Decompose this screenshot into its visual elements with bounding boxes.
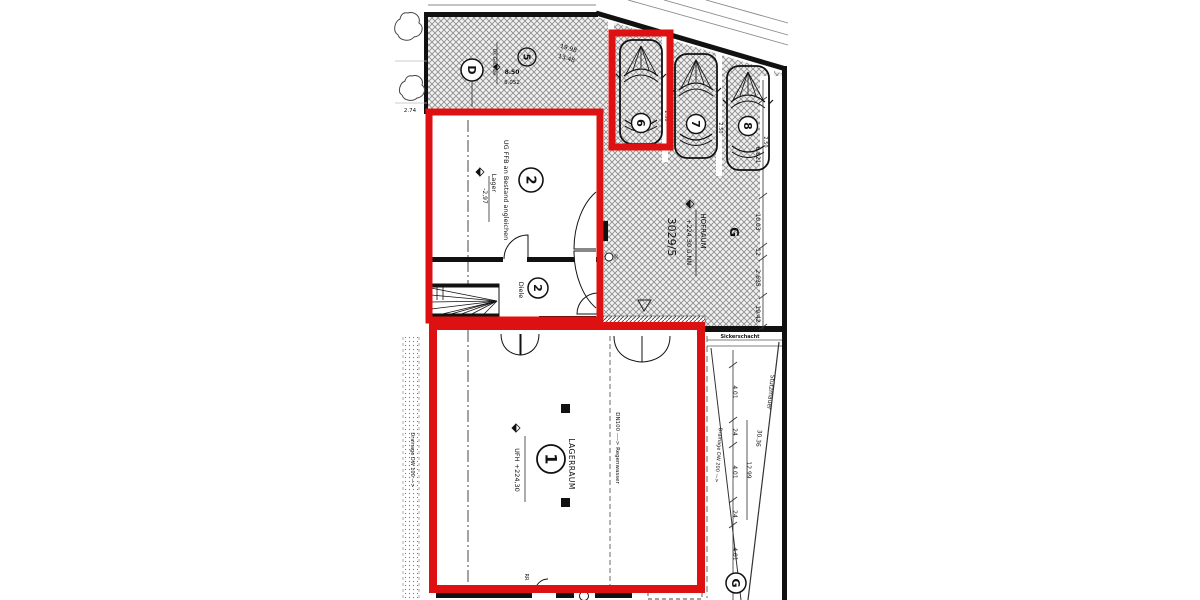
diele-name: Diele (517, 282, 525, 299)
hofraum-elevation: +224,30 ü.NN (685, 219, 693, 265)
drive-dim-1: 4.01 (731, 385, 738, 399)
car-8-number: 8 (741, 122, 754, 130)
dim-1003: 10.03 (754, 213, 761, 230)
drainage-left-label: Drainage DW 100 —> (409, 432, 415, 487)
drive-dim-5: 4.01 (731, 547, 738, 561)
hofraum-label: HOFRAUM (699, 213, 707, 248)
drive-dim-diagonal: 30.36 (754, 429, 763, 447)
room-1-number: 1 (542, 453, 561, 464)
floor-plan-screenshot: 6.821 10.03 12 2.635 19.42 4.01 24 4.01 … (0, 0, 1200, 600)
drive-dim-4: 24 (731, 510, 738, 518)
dim-2635: 2.635 (754, 269, 761, 286)
bay-dim-3: 2.50 (762, 136, 768, 147)
left-dim-label: 2.74 (404, 108, 417, 114)
dim-1942: 19.42 (754, 305, 761, 322)
dn100-label: DN100 ----> Regenwasser (614, 412, 620, 484)
section-marker-g-bottom: G (729, 578, 742, 587)
bench-value-2: 8.052 (504, 80, 520, 86)
lagerraum-elevation: UFH +224,30 (513, 448, 521, 492)
section-marker-g-top: G (727, 227, 741, 237)
drive-dim-2: 24 (731, 428, 738, 436)
dim-12: 12 (754, 248, 761, 256)
drive-dim-total: 12.99 (745, 461, 752, 478)
dim-strip-bg (760, 76, 783, 330)
drive-dim-3: 4.01 (731, 465, 738, 479)
staircase (431, 284, 499, 317)
lager-name: Lager (490, 174, 498, 193)
bay-dim-2: 2.50 (717, 122, 723, 133)
retaining-wall-label: Stützmauer (765, 374, 776, 410)
diele-number: 2 (531, 284, 544, 292)
marker-5: 5 (521, 54, 532, 61)
lager-note: UG FFB an Bestand angleichen (502, 140, 510, 240)
parcel-number: 3029/5 (665, 218, 678, 257)
section-marker-d: D (465, 65, 478, 74)
lagerraum-name: LAGERRAUM (567, 438, 576, 490)
room-2-number: 2 (523, 175, 538, 184)
car-7-number: 7 (689, 120, 702, 128)
driveway: 4.01 24 4.01 24 4.01 12.99 30.36 Stützma… (707, 334, 782, 600)
site-plan: 6.821 10.03 12 2.635 19.42 4.01 24 4.01 … (0, 0, 1200, 600)
trees (395, 13, 427, 103)
sicker-label: Sickerschacht (720, 334, 760, 340)
bench-value-1: 8.50 (505, 69, 520, 76)
column-1 (561, 404, 570, 413)
drainage-strip: Drainage DW 100 —> (403, 337, 419, 599)
lager-elevation: -2,97 (481, 188, 488, 204)
column-2 (561, 498, 570, 507)
drainage-drive-label: Drainage DW 200 —> (713, 427, 723, 482)
car-6-number: 6 (634, 119, 647, 127)
room-lagerraum: DN100 ----> Regenwasser 1 LAGERRAUM UFH … (430, 316, 705, 592)
drain-inlet-label: RE (613, 254, 618, 260)
rr-label: RR (523, 574, 529, 581)
bench-label: OK Gelände (491, 49, 497, 76)
drain-inlet-icon (605, 253, 613, 261)
